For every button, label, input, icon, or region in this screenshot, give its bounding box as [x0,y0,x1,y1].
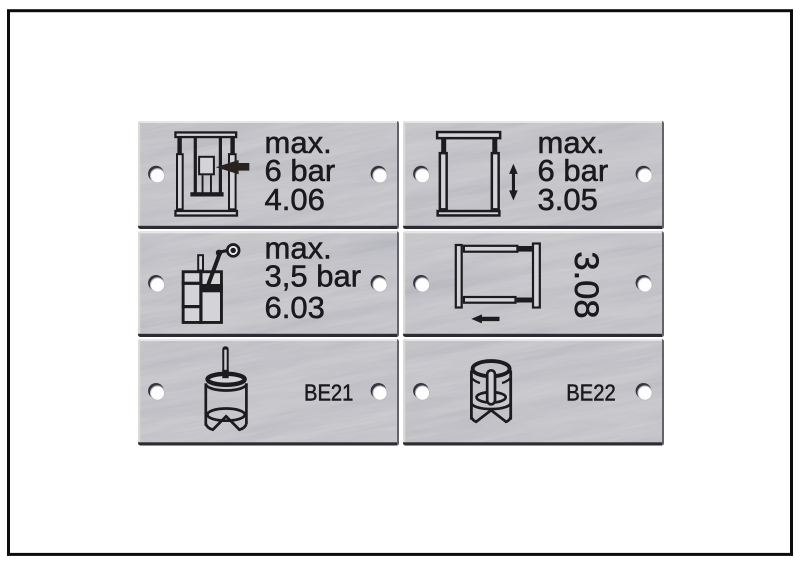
svg-text:4.06: 4.06 [265,182,325,217]
svg-text:6.03: 6.03 [265,290,325,325]
svg-text:3,5 bar: 3,5 bar [265,259,362,294]
svg-text:BE22: BE22 [566,379,615,406]
svg-text:3.05: 3.05 [538,182,598,217]
svg-text:BE21: BE21 [304,379,353,406]
svg-text:3.08: 3.08 [567,251,605,318]
